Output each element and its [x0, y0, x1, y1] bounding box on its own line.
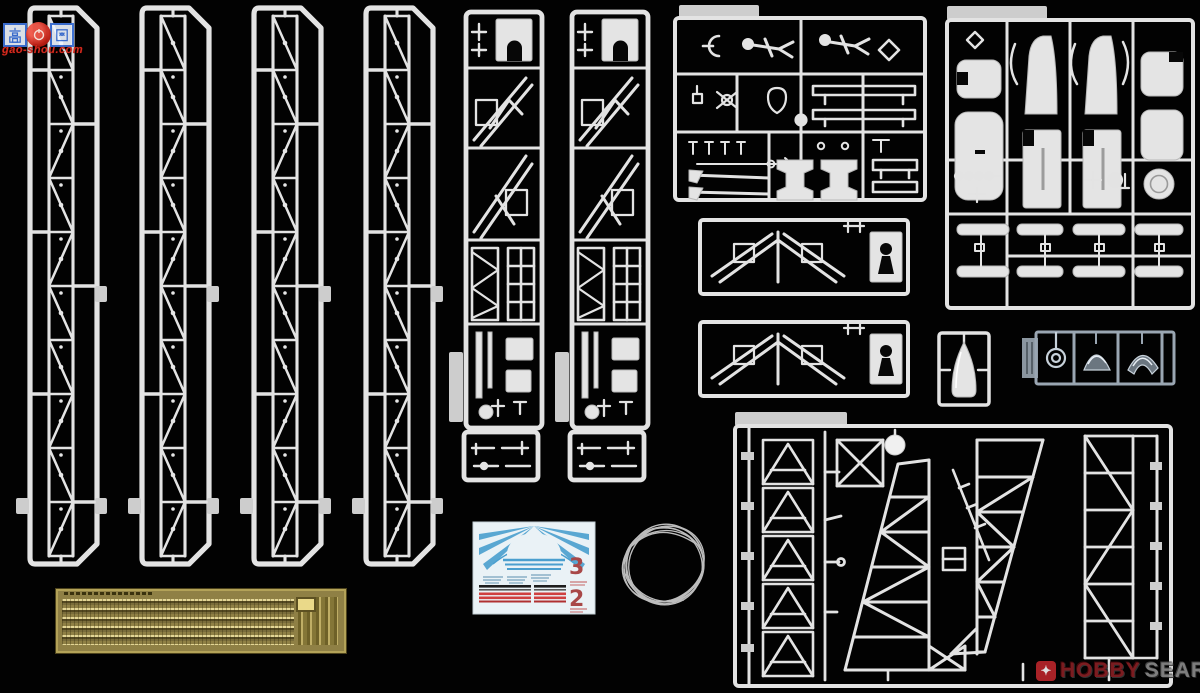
- gao-glyph-icon: [7, 27, 23, 43]
- lattice-mast-sprue-2: [568, 8, 652, 482]
- wang-glyph-icon: [54, 27, 70, 43]
- rocket-fairing-sprue: [945, 18, 1195, 310]
- product-photo-canvas: 3 2: [0, 0, 1200, 693]
- decal-numeral-2: 2: [569, 587, 584, 612]
- tower-girder-sprue-4: [361, 4, 443, 572]
- tower-girder-sprue-3: [249, 4, 331, 572]
- watermark-char-wang: [50, 23, 74, 47]
- hobbysearch-icon: ✦: [1036, 661, 1056, 681]
- watermark-url-text: gao-shou.com: [2, 44, 83, 56]
- retailer-logo: ✦ HOBBY SEARCH: [1036, 659, 1200, 683]
- diagonal-brace-sprue-1: [698, 218, 910, 296]
- etch-label-text: [64, 592, 154, 595]
- logo-word-search: SEARCH: [1145, 659, 1200, 683]
- gantry-truss-sprue: [733, 412, 1173, 690]
- clear-parts-sprue: [1022, 328, 1178, 388]
- wire-coil: [612, 512, 717, 617]
- logo-word-hobby: HOBBY: [1060, 659, 1141, 683]
- decal-numeral-3: 3: [569, 555, 584, 580]
- tower-girder-sprue-1: [25, 4, 107, 572]
- etch-bright-chip: [296, 597, 316, 612]
- nose-cone-sprue: [936, 330, 992, 408]
- decal-sheet: 3 2: [473, 522, 595, 614]
- diagonal-brace-sprue-2: [698, 320, 910, 398]
- emblem-star-icon: [32, 28, 46, 42]
- figures-and-fittings-sprue: [673, 12, 928, 202]
- photo-etched-fret: [55, 588, 347, 654]
- tower-girder-sprue-2: [137, 4, 219, 572]
- lattice-mast-sprue-1: [462, 8, 546, 482]
- etch-railing-rows: [62, 599, 294, 645]
- watermark-char-gao: [3, 23, 27, 47]
